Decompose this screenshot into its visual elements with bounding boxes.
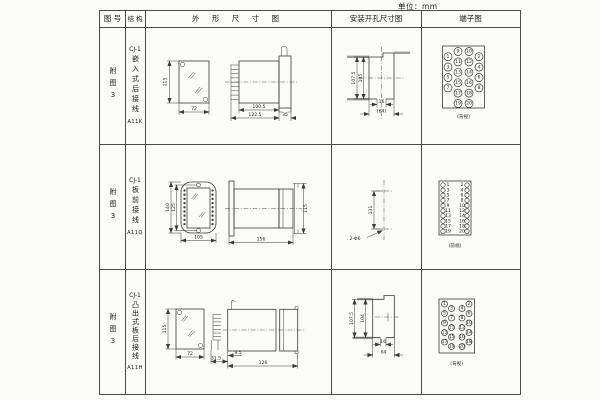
- dim-label: 107.5: [351, 71, 357, 84]
- dim-label: 156: [257, 237, 266, 243]
- terminal-number: 14: [466, 69, 472, 75]
- dim-label: (64): [377, 109, 387, 115]
- terminal-number: 8: [461, 198, 464, 204]
- terminal-number: 12: [459, 325, 465, 331]
- terminal-number: 18: [466, 90, 472, 96]
- header-structure: 结 构: [125, 11, 145, 27]
- terminal-number: 13: [455, 69, 461, 75]
- terminal-number: 11: [445, 208, 451, 214]
- slash-mark: [195, 87, 202, 94]
- terminal-pins-comb: [213, 314, 221, 340]
- figure-no-label: 附图3: [109, 313, 116, 350]
- dim-label: 2-Φ6: [349, 236, 360, 242]
- dim-label: 16: [379, 99, 385, 105]
- terminal-number: 4: [461, 187, 464, 193]
- dim-label: 115: [163, 78, 169, 87]
- structure-cell-a11q: CJ-1 板前接线 A11Q: [125, 144, 145, 269]
- pin-bracket: [212, 340, 219, 350]
- terminal-number: 17: [442, 339, 448, 345]
- series-label: CJ-1: [129, 177, 141, 184]
- extension-line: [167, 61, 179, 103]
- structure-label: 嵌入式后接线: [132, 55, 139, 115]
- terminal-number: 16: [459, 334, 465, 340]
- terminal-circles: 1591317371115194812162026101418: [442, 301, 473, 350]
- terminal-circle: [465, 209, 469, 213]
- dim-label: 115: [162, 325, 168, 334]
- install-drawing-a11k: 107.5 105 16 (64): [331, 27, 421, 144]
- figure-no-label: 附图3: [109, 188, 116, 225]
- dim-label: 140: [165, 203, 171, 212]
- dim-label: 100.5: [252, 104, 265, 110]
- install-drawing-a11q: 131 2-Φ6: [331, 144, 421, 269]
- dim-label: 72: [187, 351, 193, 357]
- structure-label: 凸出式板后接线: [132, 301, 139, 361]
- terminal-number: 17: [455, 90, 461, 96]
- terminal-circle: [441, 193, 445, 197]
- terminal-circle: [465, 198, 469, 202]
- terminal-diagram-a11q: 1357911131517192468101214161820 (前视): [421, 144, 520, 269]
- latch-hook: [232, 300, 236, 309]
- structure-cell-a11k: CJ-1 嵌入式后接线 A11K: [125, 27, 145, 144]
- terminal-circles: 1357911131517191012141618202468: [444, 48, 483, 108]
- front-view-body: [176, 309, 204, 349]
- terminal-number: 7: [450, 315, 453, 321]
- terminal-number: 10: [466, 320, 472, 326]
- slash-mark: [189, 72, 196, 79]
- slash-mark: [199, 212, 205, 218]
- terminal-circle: [465, 214, 469, 218]
- figure-no-cell-a11h: 附图3: [100, 269, 125, 394]
- dim-label: 64: [381, 350, 387, 356]
- terminal-number: 16: [459, 218, 465, 224]
- model-label: A11H: [127, 365, 143, 371]
- view-label: (背视): [450, 360, 463, 367]
- dim-label: 131: [368, 206, 374, 215]
- terminal-number: 17: [445, 223, 451, 229]
- terminal-number: 19: [445, 229, 451, 235]
- extension-line: [211, 350, 298, 369]
- terminal-diagram-a11k: 1357911131517191012141618202468 (背视): [421, 27, 520, 144]
- catalog-page: 单位：mm 图 号 结 构 外 形 尺 寸 图 安装开孔尺寸图 端子图 附图3 …: [0, 0, 600, 400]
- terminal-circle: [465, 188, 469, 192]
- model-label: A11K: [127, 119, 142, 125]
- dim-label: 107.5: [349, 312, 355, 325]
- terminal-number: 15: [449, 334, 455, 340]
- header-outline: 外 形 尺 寸 图: [145, 11, 331, 27]
- front-plate: [181, 182, 216, 233]
- terminal-circle: [441, 183, 445, 187]
- terminal-number: 19: [455, 101, 461, 107]
- terminal-number: 12: [466, 59, 472, 65]
- terminal-number: 4: [478, 64, 481, 70]
- header-terminal: 端子图: [421, 11, 520, 27]
- terminal-number: 6: [478, 75, 481, 81]
- figure-no-cell-a11q: 附图3: [100, 144, 125, 269]
- view-label: (背视): [457, 113, 470, 120]
- terminal-number: 3: [447, 187, 450, 193]
- terminal-number: 12: [459, 208, 465, 214]
- terminal-circle: [465, 219, 469, 223]
- terminal-number: 16: [466, 80, 472, 86]
- terminal-circle: [441, 198, 445, 202]
- dim-label: 9.5: [234, 350, 241, 356]
- dim-label: 122.5: [248, 112, 261, 118]
- dimension-table: 图 号 结 构 外 形 尺 寸 图 安装开孔尺寸图 端子图 附图3 CJ-1 嵌…: [99, 10, 521, 395]
- dim-label: 31.5: [211, 356, 221, 362]
- view-label: (前视): [449, 242, 462, 249]
- terminal-number: 6: [461, 193, 464, 199]
- terminal-number: 2: [468, 301, 471, 307]
- terminal-number: 13: [445, 213, 451, 219]
- outline-drawing-a11h: 115 72 31.5 9.5 126: [145, 269, 331, 394]
- terminal-number: 11: [449, 325, 455, 331]
- terminal-number: 15: [445, 218, 451, 224]
- terminal-circle: [465, 193, 469, 197]
- terminal-number: 13: [442, 330, 448, 336]
- terminal-number: 14: [466, 330, 472, 336]
- terminal-number: 3: [447, 64, 450, 70]
- install-drawing-a11h: 107.5 104 16 64: [331, 269, 421, 394]
- dim-label: 115: [303, 204, 309, 213]
- latch-hook: [282, 47, 288, 57]
- terminal-number: 4: [461, 306, 464, 312]
- figure-no-label: 附图3: [109, 67, 116, 104]
- terminal-number: 20: [466, 101, 472, 107]
- outline-drawing-a11k: 115 72 100.5 122.5 35: [145, 27, 331, 144]
- terminal-number: 5: [447, 75, 450, 81]
- dim-label: 125: [171, 203, 177, 212]
- mount-feet: [279, 108, 291, 112]
- terminal-number: 11: [455, 59, 461, 65]
- terminal-number: 18: [459, 223, 465, 229]
- terminal-circle: [465, 224, 469, 228]
- terminal-number: 20: [459, 344, 465, 350]
- dim-label: 104: [360, 314, 366, 323]
- terminal-number: 2: [478, 54, 481, 60]
- terminal-number: 1: [447, 182, 450, 188]
- terminal-number: 1: [443, 301, 446, 307]
- screw-hole: [197, 183, 201, 187]
- header-figure-no: 图 号: [100, 11, 125, 27]
- screw-hole: [198, 343, 202, 347]
- terminal-circles: 1357911131517192468101214161820: [441, 182, 469, 234]
- terminal-number: 14: [459, 213, 465, 219]
- dim-label: 35: [282, 112, 288, 118]
- terminal-circle: [441, 188, 445, 192]
- terminal-number: 9: [457, 49, 460, 55]
- dim-label: 105: [194, 235, 203, 241]
- dim-label: 105: [358, 74, 364, 83]
- slash-mark: [182, 316, 188, 322]
- dim-label: 16: [380, 339, 386, 345]
- terminal-number: 9: [447, 203, 450, 209]
- terminal-number: 10: [459, 203, 465, 209]
- front-body: [187, 188, 210, 228]
- terminal-circle: [465, 229, 469, 233]
- terminal-number: 20: [459, 229, 465, 235]
- terminal-number: 8: [478, 85, 481, 91]
- header-install: 安装开孔尺寸图: [331, 11, 421, 27]
- terminal-number: 7: [447, 198, 450, 204]
- cutout-outline: [373, 296, 395, 338]
- figure-no-cell-a11k: 附图3: [100, 27, 125, 144]
- slash-mark: [192, 194, 198, 200]
- series-label: CJ-1: [129, 292, 141, 299]
- terminal-circle: [441, 203, 445, 207]
- terminal-number: 7: [447, 85, 450, 91]
- outline-drawing-a11q: 140 125 105 156 115: [145, 144, 331, 269]
- terminal-number: 5: [443, 311, 446, 317]
- terminal-number: 6: [468, 311, 471, 317]
- screw-hole: [180, 62, 185, 67]
- terminal-number: 3: [450, 306, 453, 312]
- screw-hole: [177, 310, 181, 314]
- screw-hole: [197, 229, 201, 233]
- terminal-number: 5: [447, 193, 450, 199]
- terminal-number: 18: [466, 339, 472, 345]
- front-view-body: [179, 61, 209, 103]
- terminal-diagram-a11h: 1591317371115194812162026101418 (背视): [421, 269, 520, 394]
- dim-label: 72: [191, 106, 197, 112]
- leader-line: [367, 231, 383, 238]
- terminal-number: 8: [461, 315, 464, 321]
- terminal-number: 19: [449, 344, 455, 350]
- model-label: A11Q: [127, 230, 143, 236]
- dim-label: 126: [259, 360, 268, 366]
- terminal-number: 10: [466, 49, 472, 55]
- slash-mark: [188, 331, 194, 337]
- terminal-number: 1: [447, 54, 450, 60]
- screw-hole: [203, 97, 208, 102]
- series-label: CJ-1: [129, 46, 141, 53]
- terminal-pins-comb: [231, 65, 239, 102]
- terminal-number: 15: [455, 80, 461, 86]
- terminal-number: 2: [461, 182, 464, 188]
- structure-cell-a11h: CJ-1 凸出式板后接线 A11H: [125, 269, 145, 394]
- terminal-circle: [465, 183, 469, 187]
- terminal-circle: [465, 203, 469, 207]
- terminal-number: 9: [443, 320, 446, 326]
- structure-label: 板前接线: [132, 186, 139, 226]
